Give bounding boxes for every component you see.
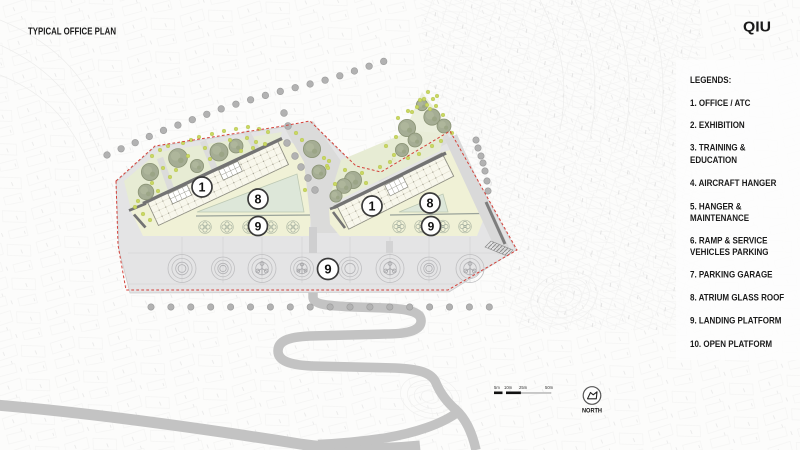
- svg-text:9: 9: [255, 219, 262, 233]
- svg-text:6. RAMP & SERVICE: 6. RAMP & SERVICE: [690, 236, 768, 247]
- svg-text:8. ATRIUM GLASS ROOF: 8. ATRIUM GLASS ROOF: [690, 292, 784, 303]
- svg-text:MAINTENANCE: MAINTENANCE: [690, 213, 750, 224]
- svg-text:4. AIRCRAFT HANGER: 4. AIRCRAFT HANGER: [690, 178, 776, 189]
- svg-text:1. OFFICE / ATC: 1. OFFICE / ATC: [690, 98, 750, 109]
- svg-text:VEHICLES PARKING: VEHICLES PARKING: [690, 247, 769, 258]
- svg-text:9. LANDING PLATFORM: 9. LANDING PLATFORM: [690, 315, 781, 326]
- svg-text:50m: 50m: [545, 385, 554, 390]
- svg-text:NORTH: NORTH: [582, 408, 602, 415]
- svg-text:EDUCATION: EDUCATION: [690, 155, 737, 166]
- svg-text:LEGENDS:: LEGENDS:: [690, 75, 731, 86]
- svg-text:1: 1: [199, 181, 206, 195]
- svg-text:QIU: QIU: [743, 20, 771, 36]
- svg-text:5. HANGER &: 5. HANGER &: [690, 202, 742, 213]
- svg-text:2. EXHIBITION: 2. EXHIBITION: [690, 120, 745, 131]
- svg-text:9: 9: [324, 262, 331, 277]
- svg-text:10. OPEN PLATFORM: 10. OPEN PLATFORM: [690, 339, 772, 350]
- svg-text:9: 9: [428, 219, 435, 233]
- svg-text:7. PARKING GARAGE: 7. PARKING GARAGE: [690, 270, 773, 281]
- svg-text:1: 1: [369, 200, 376, 214]
- svg-text:8: 8: [427, 197, 434, 211]
- svg-text:10m: 10m: [504, 385, 513, 390]
- svg-text:8: 8: [255, 193, 262, 207]
- svg-text:25m: 25m: [519, 385, 528, 390]
- svg-text:3. TRAINING &: 3. TRAINING &: [690, 143, 746, 154]
- svg-text:5m: 5m: [494, 385, 500, 390]
- svg-text:TYPICAL OFFICE PLAN: TYPICAL OFFICE PLAN: [28, 27, 116, 38]
